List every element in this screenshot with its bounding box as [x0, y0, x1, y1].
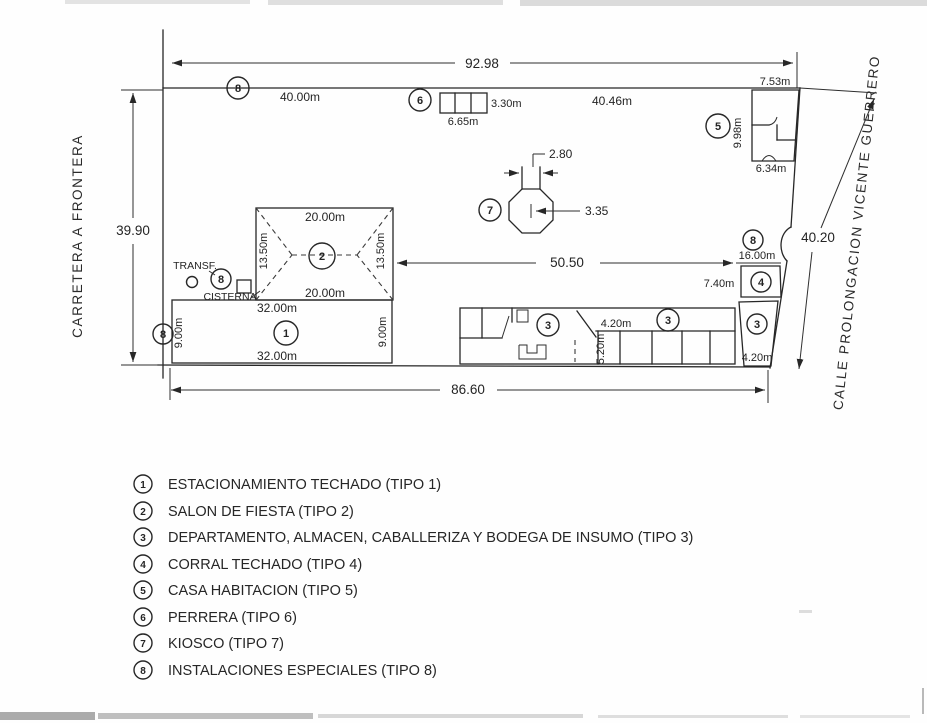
- b6-depth: 3.30m: [491, 98, 522, 110]
- b1-dim-right: 9.00m: [377, 317, 389, 348]
- marker-3-west-num: 3: [545, 320, 551, 332]
- dim-mid-span-value: 50.50: [550, 255, 584, 270]
- legend-8-num: 8: [140, 666, 146, 677]
- building-perrera: 3.30m 6.65m: [440, 93, 522, 128]
- dim-front-east: 40.46m: [592, 94, 632, 108]
- b5-dim-side: 9.98m: [732, 118, 744, 149]
- marker-8-gate-num: 8: [750, 235, 756, 247]
- b3-bay-depth: 5.20m: [595, 334, 607, 365]
- b6-width: 6.65m: [448, 116, 479, 128]
- dim-left-value: 39.90: [116, 223, 150, 238]
- site-plan-page: CARRETERA A FRONTERA CALLE PROLONGACION …: [0, 0, 927, 723]
- b7-width: 3.35: [585, 204, 609, 218]
- legend-item-3: 3 DEPARTAMENTO, ALMACEN, CABALLERIZA Y B…: [134, 528, 693, 546]
- marker-6-num: 6: [417, 95, 423, 107]
- marker-3-mid-num: 3: [665, 315, 671, 327]
- legend-4-num: 4: [140, 560, 146, 571]
- legend-item-6: 6 PERRERA (TIPO 6): [134, 608, 297, 626]
- cisterna-label: CISTERNA: [203, 291, 256, 303]
- marker-7: 7: [479, 199, 501, 221]
- marker-6: 6: [409, 89, 431, 111]
- b5-dim-top: 7.53m: [760, 76, 791, 88]
- b1-dim-bottom: 32.00m: [257, 349, 297, 363]
- marker-3-mid: 3: [657, 309, 679, 331]
- legend-6-label: PERRERA (TIPO 6): [168, 610, 297, 626]
- legend-8-label: INSTALACIONES ESPECIALES (TIPO 8): [168, 663, 437, 679]
- street-left-label: CARRETERA A FRONTERA: [70, 134, 85, 338]
- legend-item-5: 5 CASA HABITACION (TIPO 5): [134, 581, 358, 599]
- b5-dim-bottom: 6.34m: [756, 163, 787, 175]
- legend-item-8: 8 INSTALACIONES ESPECIALES (TIPO 8): [134, 661, 437, 679]
- street-right-label: CALLE PROLONGACION VICENTE GUERRERO: [830, 54, 882, 410]
- b7-entry: 2.80: [549, 147, 573, 161]
- marker-2: 2: [309, 243, 335, 269]
- b3-east-width: 4.20m: [742, 352, 773, 364]
- b2-dim-right: 13.50m: [375, 233, 387, 270]
- transformer-symbol: [187, 277, 198, 288]
- building-departamento: 4.20m 5.20m: [460, 308, 735, 364]
- b2-dim-left: 13.50m: [258, 233, 270, 270]
- scan-artifacts: [0, 0, 927, 720]
- legend-1-num: 1: [140, 480, 146, 491]
- legend-item-4: 4 CORRAL TECHADO (TIPO 4): [134, 555, 362, 573]
- legend-5-label: CASA HABITACION (TIPO 5): [168, 583, 358, 599]
- b1-dim-top: 32.00m: [257, 301, 297, 315]
- dimension-bottom: 86.60: [170, 368, 768, 403]
- building-casa: 7.53m 9.98m 6.34m: [732, 76, 799, 175]
- legend-7-num: 7: [140, 639, 146, 650]
- marker-3-east: 3: [747, 314, 767, 334]
- b1-dim-left: 9.00m: [173, 318, 185, 349]
- marker-5: 5: [706, 114, 730, 138]
- marker-3-west: 3: [537, 314, 559, 336]
- marker-8-transf-num: 8: [218, 274, 224, 286]
- legend-item-2: 2 SALON DE FIESTA (TIPO 2): [134, 502, 354, 520]
- marker-8-left-num: 8: [160, 329, 166, 341]
- gate-arc: [781, 227, 791, 261]
- transf-label: TRANSF.: [173, 260, 217, 272]
- legend-3-num: 3: [140, 533, 146, 544]
- building-kiosco: 2.80 3.35: [504, 147, 609, 233]
- marker-1: 1: [274, 321, 298, 345]
- dim-right-value: 40.20: [801, 230, 835, 245]
- dim-top-value: 92.98: [465, 56, 499, 71]
- legend-6-num: 6: [140, 613, 146, 624]
- b4-width: 7.40m: [704, 278, 735, 290]
- legend-item-7: 7 KIOSCO (TIPO 7): [134, 634, 284, 652]
- marker-7-num: 7: [487, 205, 493, 217]
- legend: 1 ESTACIONAMIENTO TECHADO (TIPO 1) 2 SAL…: [134, 475, 693, 679]
- marker-1-num: 1: [283, 328, 289, 340]
- dim-bottom-value: 86.60: [451, 382, 485, 397]
- legend-item-1: 1 ESTACIONAMIENTO TECHADO (TIPO 1): [134, 475, 441, 493]
- dimension-mid-span: 50.50: [397, 255, 733, 270]
- dim-front-west: 40.00m: [280, 90, 320, 104]
- marker-3-east-num: 3: [754, 319, 760, 331]
- b2-dim-bottom: 20.00m: [305, 286, 345, 300]
- dimension-top: 92.98: [172, 52, 797, 88]
- marker-8-top-num: 8: [235, 83, 241, 95]
- utilities: TRANSF. CISTERNA: [173, 260, 260, 303]
- marker-8-transf: 8: [211, 269, 231, 289]
- legend-2-label: SALON DE FIESTA (TIPO 2): [168, 504, 354, 520]
- marker-4-num: 4: [758, 277, 765, 289]
- legend-4-label: CORRAL TECHADO (TIPO 4): [168, 557, 362, 573]
- b4-frontage: 16.00m: [739, 250, 776, 262]
- marker-5-num: 5: [715, 121, 721, 133]
- legend-2-num: 2: [140, 507, 146, 518]
- legend-7-label: KIOSCO (TIPO 7): [168, 636, 284, 652]
- site-plan-drawing: CARRETERA A FRONTERA CALLE PROLONGACION …: [0, 0, 927, 723]
- marker-4: 4: [751, 272, 771, 292]
- b3-bay-width: 4.20m: [601, 318, 632, 330]
- legend-3-label: DEPARTAMENTO, ALMACEN, CABALLERIZA Y BOD…: [168, 530, 693, 546]
- dimension-left: 39.90: [116, 90, 163, 365]
- legend-1-label: ESTACIONAMIENTO TECHADO (TIPO 1): [168, 477, 441, 493]
- legend-5-num: 5: [140, 586, 146, 597]
- marker-2-num: 2: [319, 251, 325, 263]
- b2-dim-top: 20.00m: [305, 210, 345, 224]
- marker-8-gate: 8: [743, 230, 763, 250]
